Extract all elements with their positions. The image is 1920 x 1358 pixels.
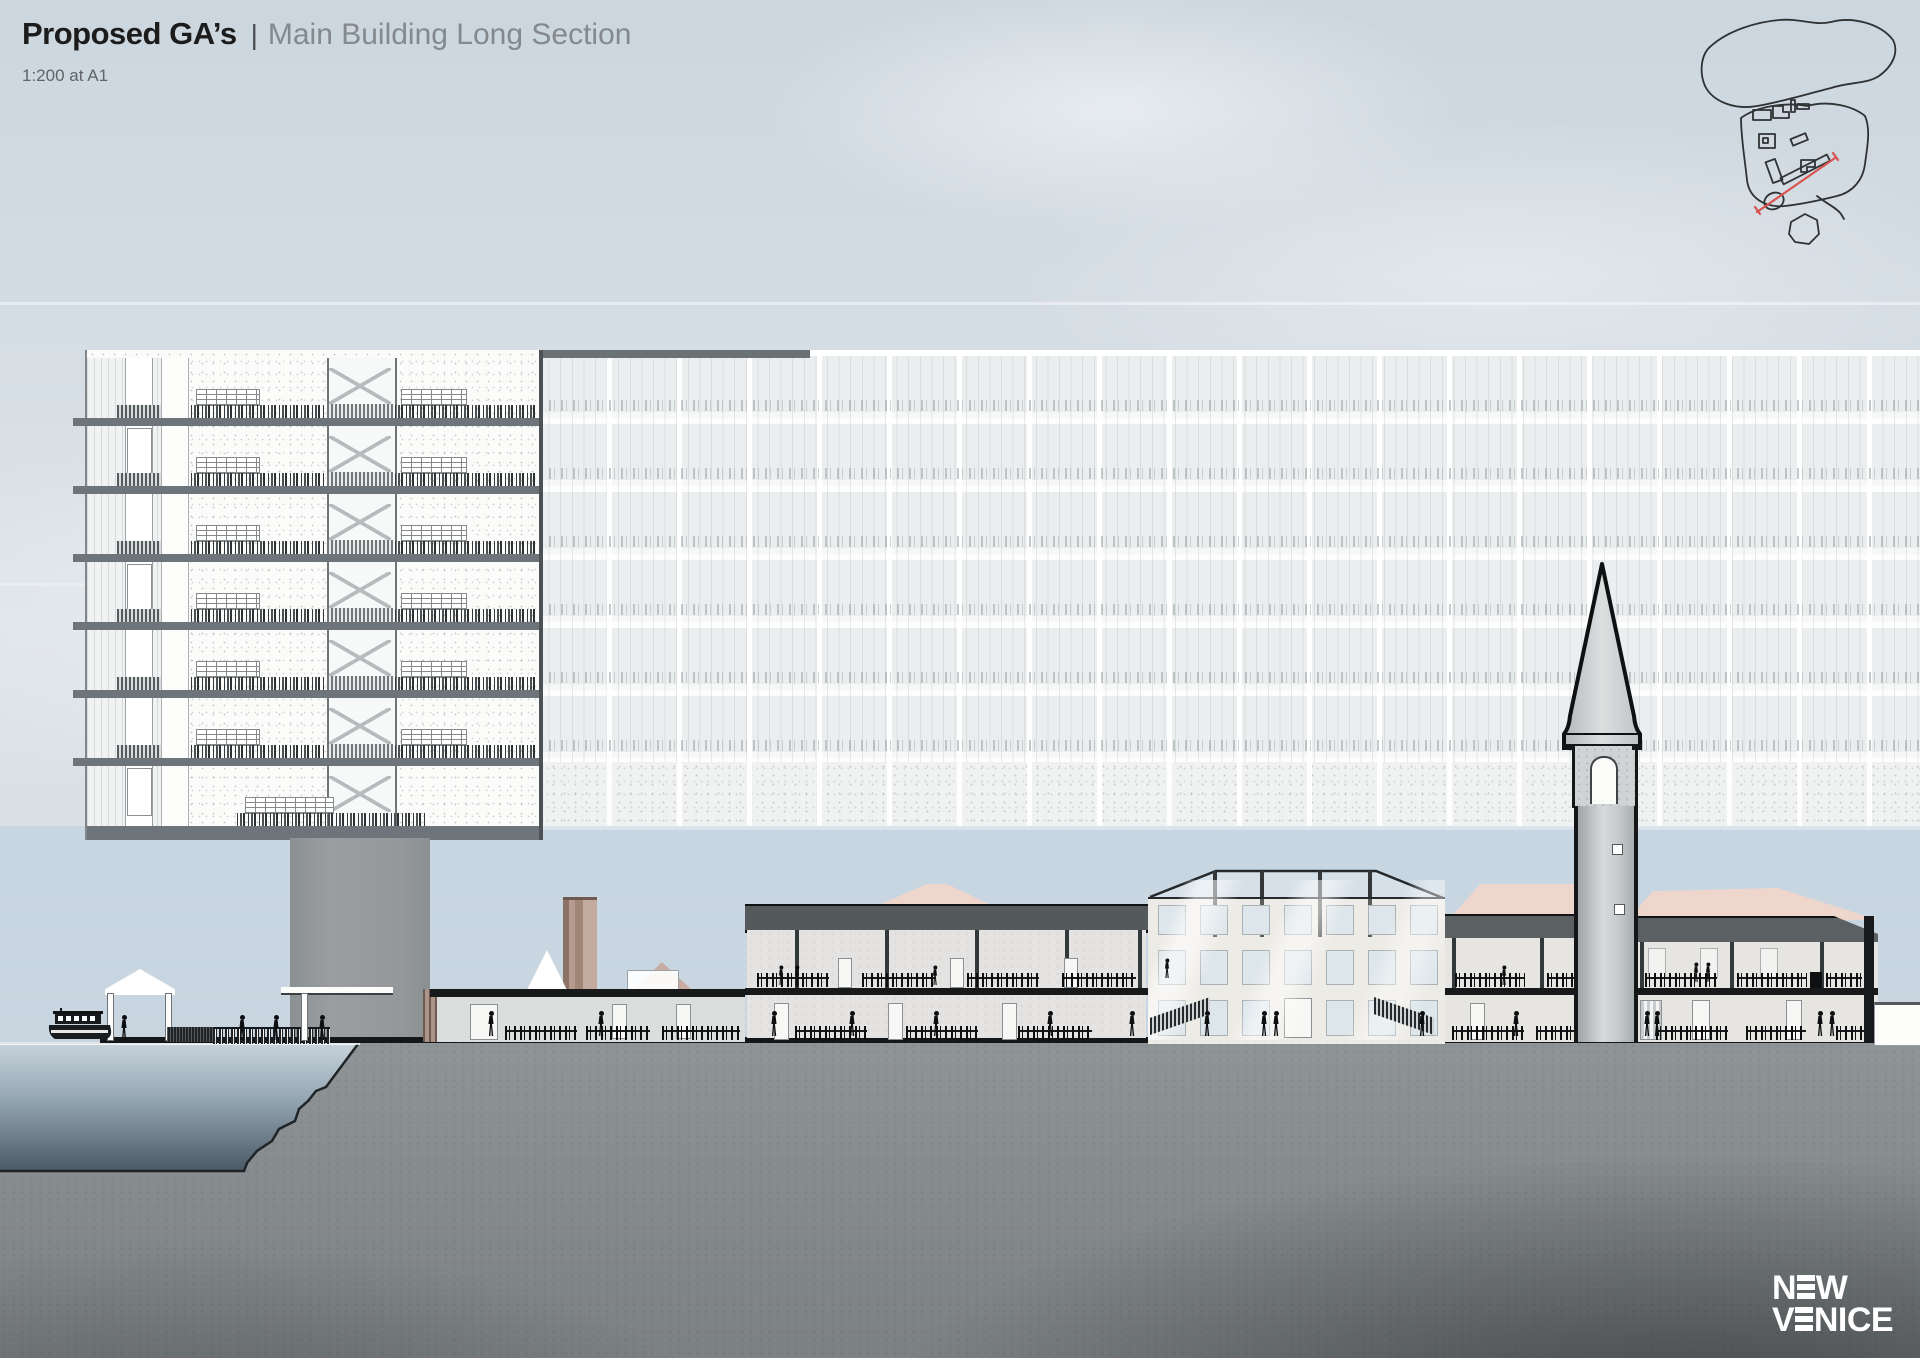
shaft-window bbox=[1614, 904, 1625, 915]
scale-note: 1:200 at A1 bbox=[22, 66, 631, 86]
cut-tower-section bbox=[85, 350, 543, 840]
cafe-tables-row bbox=[586, 1026, 650, 1040]
roof-post bbox=[1318, 899, 1322, 937]
person-silhouette bbox=[1418, 1011, 1426, 1036]
building-footprint bbox=[1766, 159, 1783, 183]
x-bracing bbox=[329, 504, 391, 540]
person-silhouette bbox=[848, 1011, 856, 1036]
dark-cabinet bbox=[1810, 972, 1822, 988]
person-silhouette bbox=[1693, 963, 1699, 983]
brick-chimney bbox=[563, 897, 597, 996]
floor-slab bbox=[87, 622, 539, 630]
office-furniture bbox=[395, 593, 535, 622]
person-silhouette bbox=[1643, 1011, 1651, 1036]
atrium-door bbox=[1284, 998, 1312, 1038]
person-silhouette bbox=[1501, 966, 1507, 986]
window bbox=[1242, 950, 1270, 985]
core-louvre bbox=[327, 404, 393, 418]
ghost-furniture-row bbox=[537, 740, 1920, 751]
person-silhouette bbox=[1260, 1011, 1268, 1036]
ghost-ground-floor bbox=[537, 762, 1920, 829]
person-silhouette bbox=[272, 1015, 280, 1040]
x-bracing bbox=[329, 572, 391, 608]
cafe-tables-row bbox=[1018, 1026, 1092, 1040]
campanile-spire bbox=[1560, 558, 1644, 758]
window bbox=[1410, 905, 1438, 935]
window bbox=[1158, 905, 1186, 935]
white-annex bbox=[1874, 1002, 1920, 1046]
building-footprint bbox=[1790, 133, 1807, 145]
logo-line-2: VNICE bbox=[1772, 1304, 1893, 1336]
office-furniture bbox=[191, 389, 325, 418]
ghost-furniture-row bbox=[537, 672, 1920, 683]
podium-roof-slab bbox=[430, 989, 745, 997]
person-silhouette bbox=[794, 966, 800, 986]
balcony-slab-tab bbox=[73, 554, 88, 562]
balcony-balustrade bbox=[117, 473, 161, 486]
office-furniture bbox=[395, 389, 535, 418]
title-separator: | bbox=[251, 19, 258, 50]
column bbox=[1540, 938, 1544, 988]
ghost-furniture-row bbox=[537, 468, 1920, 479]
logo-line-1: NW bbox=[1772, 1272, 1893, 1304]
core-louvre bbox=[327, 540, 393, 554]
floor-slab bbox=[87, 554, 539, 562]
person-silhouette bbox=[1653, 1011, 1661, 1036]
ghost-furniture-row bbox=[537, 604, 1920, 615]
end-wall bbox=[1864, 916, 1874, 1042]
ground-door bbox=[888, 1003, 903, 1040]
cafe-tables-row bbox=[906, 1026, 978, 1040]
office-furniture bbox=[191, 593, 325, 622]
cafe-tables-row bbox=[967, 973, 1039, 987]
upper-door bbox=[838, 958, 852, 988]
campanile-belfry bbox=[1572, 744, 1638, 808]
office-furniture bbox=[395, 457, 535, 486]
person-silhouette bbox=[597, 1011, 605, 1036]
flat-roof bbox=[281, 987, 393, 995]
building-footprint bbox=[1773, 106, 1789, 118]
ghost-furniture-row bbox=[537, 536, 1920, 547]
office-furniture bbox=[191, 525, 325, 554]
building-footprint bbox=[1763, 138, 1768, 143]
arrival-canopy bbox=[281, 987, 393, 1042]
window bbox=[1158, 950, 1186, 985]
logo-letter: V bbox=[1772, 1301, 1794, 1339]
balcony-balustrade bbox=[117, 677, 161, 690]
cornice-ledge bbox=[1632, 744, 1642, 750]
floor-slab bbox=[745, 988, 1148, 995]
island-outline-site bbox=[1741, 104, 1868, 207]
office-furniture bbox=[395, 525, 535, 554]
balcony-slab-tab bbox=[73, 622, 88, 630]
person-silhouette bbox=[770, 1011, 778, 1036]
window bbox=[1326, 1000, 1354, 1036]
window bbox=[1200, 905, 1228, 935]
belfry-arch-window bbox=[1590, 756, 1618, 804]
floor-slab bbox=[1632, 988, 1878, 995]
watercolor-streak bbox=[0, 302, 1920, 305]
person-silhouette bbox=[1128, 1011, 1136, 1036]
drawing-header: Proposed GA’s|Main Building Long Section… bbox=[22, 16, 631, 86]
water-basin-section bbox=[0, 1030, 375, 1358]
person-silhouette bbox=[487, 1011, 495, 1036]
cornice-ledge bbox=[1562, 744, 1572, 750]
page-subtitle: Main Building Long Section bbox=[268, 18, 632, 51]
window bbox=[1200, 950, 1228, 985]
cafe-tables-row bbox=[1062, 973, 1136, 987]
stylized-e-icon bbox=[1795, 1307, 1813, 1331]
island-outline-north bbox=[1702, 20, 1896, 107]
office-furniture bbox=[395, 661, 535, 690]
lift-car bbox=[127, 428, 152, 476]
ghost-long-elevation bbox=[537, 350, 1920, 830]
building-footprint bbox=[1759, 134, 1775, 148]
colonnade-roof bbox=[745, 904, 1148, 933]
canopy-post bbox=[301, 993, 308, 1041]
x-bracing bbox=[329, 640, 391, 676]
cafe-tables-row bbox=[1737, 973, 1807, 987]
person-silhouette bbox=[120, 1015, 128, 1040]
octagon-footprint bbox=[1789, 214, 1819, 244]
core-louvre bbox=[327, 472, 393, 486]
column bbox=[1640, 942, 1644, 988]
cafe-tables-row bbox=[505, 1026, 577, 1040]
island-tail bbox=[1817, 196, 1844, 219]
lift-car bbox=[127, 564, 152, 612]
column bbox=[1730, 942, 1734, 988]
lift-car bbox=[127, 768, 152, 816]
column bbox=[1138, 930, 1142, 988]
stair-shaft bbox=[161, 358, 189, 826]
person-silhouette bbox=[932, 1011, 940, 1036]
cafe-tables-row bbox=[795, 1026, 867, 1040]
person-silhouette bbox=[1512, 1011, 1520, 1036]
title-row: Proposed GA’s|Main Building Long Section bbox=[22, 16, 631, 52]
window bbox=[1284, 950, 1312, 985]
window bbox=[1368, 905, 1396, 935]
floor-slab bbox=[87, 418, 539, 426]
presentation-board: Proposed GA’s|Main Building Long Section… bbox=[0, 0, 1920, 1358]
building-footprint bbox=[1791, 100, 1795, 112]
window bbox=[1410, 950, 1438, 985]
x-bracing bbox=[329, 368, 391, 404]
window bbox=[1326, 905, 1354, 935]
office-furniture bbox=[191, 729, 325, 758]
person-silhouette bbox=[238, 1015, 246, 1040]
cafe-tables-row bbox=[1656, 1026, 1728, 1040]
person-silhouette bbox=[1816, 1011, 1824, 1036]
upper-door bbox=[950, 958, 964, 988]
x-bracing bbox=[329, 436, 391, 472]
office-furniture bbox=[395, 729, 535, 758]
office-furniture bbox=[237, 797, 427, 826]
core-louvre bbox=[327, 676, 393, 690]
window bbox=[1242, 905, 1270, 935]
vaporetto-boat bbox=[46, 1006, 116, 1046]
page-title: Proposed GA’s bbox=[22, 16, 237, 51]
office-furniture bbox=[191, 457, 325, 486]
x-bracing bbox=[329, 708, 391, 744]
ground-door bbox=[1002, 1003, 1017, 1040]
core-louvre bbox=[327, 608, 393, 622]
core-louvre bbox=[327, 744, 393, 758]
balcony-balustrade bbox=[117, 609, 161, 622]
balcony-slab-tab bbox=[73, 690, 88, 698]
person-silhouette bbox=[1203, 1011, 1211, 1036]
shaft-window bbox=[1612, 844, 1623, 855]
cafe-tables-row bbox=[662, 1026, 740, 1040]
stylized-e-icon bbox=[1797, 1275, 1815, 1299]
person-silhouette bbox=[1272, 1011, 1280, 1036]
person-silhouette bbox=[778, 966, 784, 986]
floor-slab bbox=[87, 486, 539, 494]
window bbox=[1284, 905, 1312, 935]
balcony-slab-tab bbox=[73, 758, 88, 766]
cafe-tables-row bbox=[862, 973, 934, 987]
site-key-plan bbox=[1695, 8, 1920, 253]
balcony-balustrade bbox=[117, 745, 161, 758]
person-silhouette bbox=[1046, 1011, 1054, 1036]
campanile-shaft bbox=[1574, 806, 1638, 1042]
cafe-tables-row bbox=[1836, 1026, 1864, 1040]
glazed-roof bbox=[1148, 862, 1445, 902]
building-footprint bbox=[1753, 110, 1771, 120]
new-venice-logo: NW VNICE bbox=[1772, 1272, 1893, 1337]
logo-letters: NICE bbox=[1814, 1301, 1893, 1339]
person-silhouette bbox=[1828, 1011, 1836, 1036]
balcony-slab-tab bbox=[73, 486, 88, 494]
balcony-balustrade bbox=[117, 405, 161, 418]
person-silhouette bbox=[932, 966, 938, 986]
gable-roof bbox=[105, 969, 175, 995]
office-furniture bbox=[191, 661, 325, 690]
balcony-balustrade bbox=[117, 541, 161, 554]
balcony-slab-tab bbox=[73, 418, 88, 426]
floor-slab bbox=[87, 690, 539, 698]
ghost-furniture-row bbox=[537, 400, 1920, 411]
quay-fence-solid bbox=[167, 1027, 213, 1042]
cafe-tables-row bbox=[1826, 973, 1862, 987]
floor-slab bbox=[87, 758, 539, 766]
person-silhouette bbox=[318, 1015, 326, 1040]
window bbox=[1326, 950, 1354, 985]
cafe-tables-row bbox=[1455, 973, 1525, 987]
person-silhouette bbox=[1705, 963, 1711, 983]
cafe-tables-row bbox=[1746, 1026, 1806, 1040]
window bbox=[1368, 950, 1396, 985]
person-silhouette bbox=[1164, 959, 1170, 979]
